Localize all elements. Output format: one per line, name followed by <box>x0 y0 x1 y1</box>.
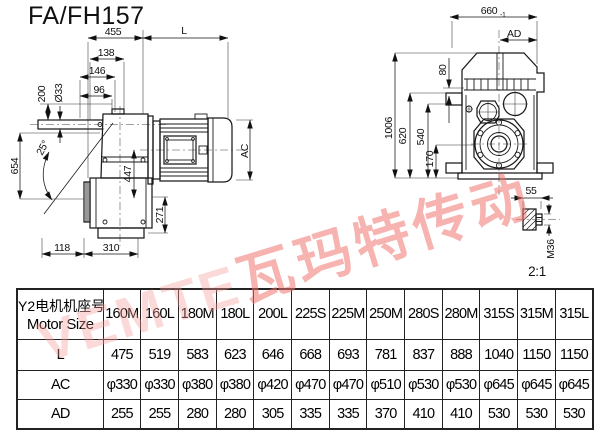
motor-size-column: 315M <box>518 289 556 339</box>
table-cell: 530 <box>555 399 593 429</box>
dim-310-label: 310 <box>103 242 120 254</box>
table-cell: φ645 <box>518 370 556 399</box>
table-cell: φ330 <box>141 370 179 399</box>
table-cell: 1150 <box>518 339 556 370</box>
table-cell: 837 <box>405 339 443 370</box>
table-cell: 888 <box>442 339 480 370</box>
dim-80-label: 80 <box>437 64 449 76</box>
dim-33-label: Ø33 <box>53 83 65 102</box>
dim-660-tolerance: -1 <box>500 12 506 19</box>
table-cell: φ380 <box>216 370 254 399</box>
table-row: L475519583623646668693781837888104011501… <box>17 339 593 370</box>
dim-447-label: 447 <box>122 165 134 182</box>
shaft-detail-drawing: 55 M36 2:1 <box>511 185 560 279</box>
table-cell: 475 <box>103 339 141 370</box>
motor-size-column: 225M <box>329 289 367 339</box>
dim-170-label: 170 <box>424 150 436 167</box>
table-cell: φ530 <box>442 370 480 399</box>
motor-size-column: 250M <box>367 289 405 339</box>
detail-scale-label: 2:1 <box>528 264 546 279</box>
dim-654-label: 654 <box>9 157 21 174</box>
table-cell: φ330 <box>103 370 141 399</box>
table-cell: 530 <box>518 399 556 429</box>
table-cell: 781 <box>367 339 405 370</box>
table-row: ACφ330φ330φ380φ380φ420φ470φ470φ510φ530φ5… <box>17 370 593 399</box>
dim-455-label: 455 <box>105 26 122 38</box>
table-cell: φ420 <box>254 370 292 399</box>
table-cell: φ645 <box>480 370 518 399</box>
motor-size-column: 180M <box>178 289 216 339</box>
motor-size-column: 280S <box>405 289 443 339</box>
catalog-page: FA/FH157 <box>0 0 600 442</box>
table-cell: φ470 <box>329 370 367 399</box>
row-label: AD <box>17 399 103 429</box>
motor-body <box>160 114 232 182</box>
motor-size-header-en: Motor Size <box>18 316 103 333</box>
row-label: AC <box>17 370 103 399</box>
spec-table-body: L475519583623646668693781837888104011501… <box>17 339 593 429</box>
table-cell: 646 <box>254 339 292 370</box>
table-cell: 623 <box>216 339 254 370</box>
dim-1006-label: 1006 <box>383 116 395 139</box>
table-cell: 255 <box>141 399 179 429</box>
front-view-drawing: 660 -1 AD 1006 620 540 80 170 <box>383 5 553 195</box>
dim-138-label: 138 <box>98 47 115 59</box>
dim-AC-label: AC <box>239 143 251 158</box>
dim-660-label: 660 <box>481 5 498 17</box>
dim-271-label: 271 <box>154 206 166 223</box>
table-cell: 1150 <box>555 339 593 370</box>
dim-AD-label: AD <box>507 28 522 40</box>
table-cell: φ470 <box>291 370 329 399</box>
table-cell: 410 <box>405 399 443 429</box>
dim-L-label: L <box>181 25 187 37</box>
motor-size-column: 280M <box>442 289 480 339</box>
table-cell: 370 <box>367 399 405 429</box>
table-cell: 335 <box>329 399 367 429</box>
table-cell: 668 <box>291 339 329 370</box>
table-cell: 530 <box>480 399 518 429</box>
technical-drawing: 25° 455 L <box>0 0 600 286</box>
table-cell: 305 <box>254 399 292 429</box>
table-cell: 280 <box>216 399 254 429</box>
dim-96-label: 96 <box>93 84 105 96</box>
motor-size-column: 315S <box>480 289 518 339</box>
motor-size-column: 160L <box>141 289 179 339</box>
dim-118-label: 118 <box>54 242 70 254</box>
table-cell: 335 <box>291 399 329 429</box>
thread-M36-label: M36 <box>545 239 557 259</box>
motor-dimension-table: Y2电机机座号 Motor Size 160M160L180M180L200L2… <box>16 288 594 430</box>
table-row: AD25525528028030533533537041041053053053… <box>17 399 593 429</box>
motor-size-column: 225S <box>291 289 329 339</box>
dim-angle-label: 25° <box>34 138 52 157</box>
table-cell: φ380 <box>178 370 216 399</box>
dim-146-label: 146 <box>89 65 106 77</box>
side-view-drawing: 25° 455 L <box>9 25 253 258</box>
table-cell: 410 <box>442 399 480 429</box>
table-header-row: Y2电机机座号 Motor Size 160M160L180M180L200L2… <box>17 289 593 339</box>
dim-540-label: 540 <box>415 128 427 145</box>
motor-size-header-cell: Y2电机机座号 Motor Size <box>17 289 103 339</box>
motor-size-column: 180L <box>216 289 254 339</box>
row-label: L <box>17 339 103 370</box>
motor-size-column: 160M <box>103 289 141 339</box>
table-cell: 280 <box>178 399 216 429</box>
dim-200-label: 200 <box>36 85 48 102</box>
inspection-plugs <box>465 91 528 123</box>
table-cell: φ510 <box>367 370 405 399</box>
motor-size-column: 315L <box>555 289 593 339</box>
table-cell: 519 <box>141 339 179 370</box>
dim-55-label: 55 <box>525 185 537 197</box>
motor-size-column: 200L <box>254 289 292 339</box>
side-view-dimensions <box>20 38 250 254</box>
dim-620-label: 620 <box>397 127 409 144</box>
table-cell: φ530 <box>405 370 443 399</box>
table-cell: 583 <box>178 339 216 370</box>
table-cell: 255 <box>103 399 141 429</box>
table-cell: φ645 <box>555 370 593 399</box>
motor-size-header-cn: Y2电机机座号 <box>18 296 103 316</box>
table-cell: 1040 <box>480 339 518 370</box>
gear-housing <box>84 109 152 238</box>
table-cell: 693 <box>329 339 367 370</box>
